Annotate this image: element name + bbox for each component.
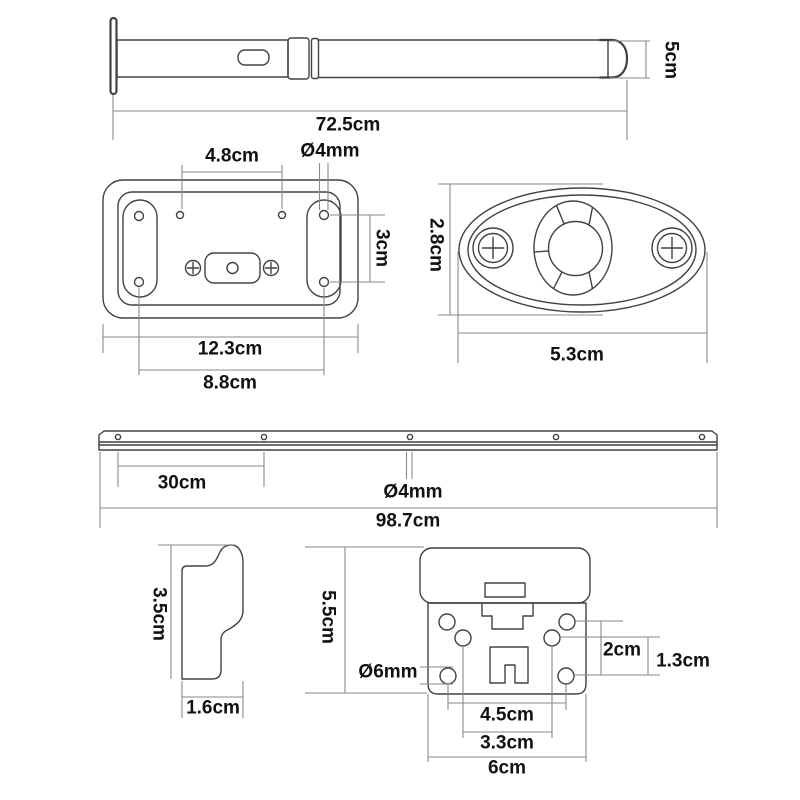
dim-pole-diameter: 5cm: [662, 41, 681, 79]
rail-face-lines: [99, 442, 717, 445]
oval-ring-outer: [534, 201, 612, 295]
pole-inner-tube: [318, 40, 608, 78]
rail-hole: [407, 434, 412, 439]
pole-outer-tube: [117, 40, 288, 77]
bracket-t-slot: [482, 604, 533, 629]
dim-profile-depth: 1.6cm: [186, 699, 240, 718]
bracket-cap-slot: [485, 583, 525, 597]
rail-hole: [261, 434, 266, 439]
plate-small-hole: [279, 212, 286, 219]
dim-bracket-right-outer: 2cm: [603, 641, 641, 660]
dim-bracket-right-inner: 1.3cm: [656, 652, 710, 671]
dim-plate-side-spacing: 3cm: [373, 229, 392, 267]
dim-rail-length: 98.7cm: [376, 512, 440, 531]
plate-hole: [135, 212, 144, 221]
plate-small-hole: [177, 212, 184, 219]
rail-hole: [699, 434, 704, 439]
rail-hole: [115, 434, 120, 439]
plate-center-boss: [205, 253, 260, 283]
plate-hole: [320, 211, 329, 220]
bracket-body: [428, 603, 586, 694]
rail-hole: [553, 434, 558, 439]
dim-plate-hole-span: 8.8cm: [203, 374, 257, 393]
bracket-hole: [559, 614, 575, 630]
pole-end-cap: [600, 40, 627, 78]
dim-bracket-hole-diameter: Ø6mm: [358, 663, 417, 682]
dim-bracket-span-outer: 4.5cm: [480, 706, 534, 725]
plate-top-spacing-dim-lines: [182, 165, 282, 209]
dim-oval-height: 2.8cm: [427, 218, 446, 272]
dim-bracket-span-inner: 3.3cm: [480, 734, 534, 753]
dim-plate-width: 12.3cm: [198, 340, 262, 359]
pole-diameter-dim-lines: [610, 41, 650, 78]
plate-hole: [135, 278, 144, 287]
bracket-hole: [455, 630, 471, 646]
oval-inner-edge: [468, 195, 696, 305]
pole-collar-ring: [312, 39, 319, 79]
bracket-center-cutout: [490, 647, 528, 683]
dim-profile-height: 3.5cm: [150, 587, 169, 641]
plate-center-hole: [227, 263, 238, 274]
rail-outline: [99, 431, 717, 450]
oval-ring-inner: [549, 222, 603, 276]
plate-span-dim-lines: [139, 288, 324, 375]
dim-rail-hole-diameter: Ø4mm: [383, 483, 442, 502]
telescopic-pole-drawing: [111, 18, 651, 140]
bracket-hole: [544, 630, 560, 646]
profile-drawing: [158, 545, 243, 718]
dim-rail-hole-spacing: 30cm: [158, 474, 207, 493]
bracket-hole: [558, 668, 574, 684]
oval-screw-left: [473, 228, 513, 268]
plate-screw-right: [264, 261, 279, 276]
bracket-hole-dia-pointers: [420, 667, 453, 684]
plate-hole-dia-pointers: [320, 163, 329, 210]
oval-screw-right: [652, 228, 692, 268]
dim-plate-hole-diameter: Ø4mm: [300, 142, 359, 161]
dim-pole-length: 72.5cm: [316, 116, 380, 135]
bracket-hole: [440, 668, 456, 684]
dimension-diagram: 5cm 72.5cm 4.8cm Ø4mm 3cm 12.3cm 8.8cm 2…: [0, 0, 800, 800]
profile-height-dim-lines: [158, 545, 236, 679]
plate-left-slot: [123, 200, 157, 297]
dim-bracket-width: 6cm: [488, 759, 526, 778]
bracket-cap: [420, 548, 590, 603]
pole-collar: [288, 38, 309, 79]
plate-screw-left: [186, 261, 201, 276]
pole-button-slot: [238, 50, 269, 65]
plate-hole: [320, 278, 329, 287]
dim-oval-width: 5.3cm: [550, 346, 604, 365]
rail-hole-dia-pointers: [407, 452, 413, 479]
oval-plate-drawing: [438, 184, 707, 363]
dim-bracket-height: 5.5cm: [319, 590, 338, 644]
bracket-hole: [439, 614, 455, 630]
profile-outline: [182, 545, 243, 679]
dim-plate-top-spacing: 4.8cm: [205, 147, 259, 166]
pole-flange: [111, 18, 117, 94]
